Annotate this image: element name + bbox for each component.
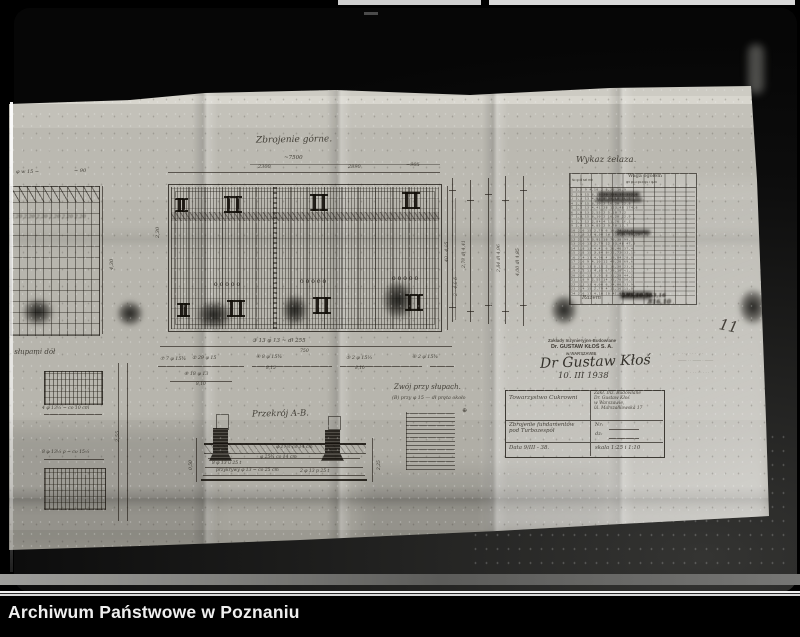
bar-length-label: 4,00 dł 4,85 (516, 248, 521, 276)
dimension-label: 2890 (348, 165, 361, 171)
i-beam-symbol (175, 198, 188, 212)
left-panel-note: φ w 15 ~ (16, 170, 39, 176)
dimension-line (372, 438, 373, 482)
ink-blot (282, 294, 308, 326)
bent-bar-diagram (470, 180, 471, 322)
dimension-label: 0,50 (190, 460, 195, 470)
title-block-date: Data 9/III - 38. (509, 446, 549, 452)
bar-schedule-line (430, 366, 454, 367)
iron-table-group-header: Waga ogółem (628, 174, 662, 180)
section-note: 2 φ 13 p 25 t (300, 470, 329, 475)
bar-mark: ② 29 φ 15 (192, 356, 216, 361)
board-bottom-edge (0, 574, 800, 585)
dimension-label: 2,25 (378, 460, 383, 470)
title-block-client: Towarzystwo Cukrowni (509, 395, 578, 401)
plan-title: Zbrojenie górne. (256, 135, 332, 146)
pit-hatch-detail (406, 412, 455, 470)
i-beam-symbol (177, 303, 190, 317)
pier-plan-detail (44, 468, 106, 510)
stirrup-marks: ooooo (300, 278, 328, 285)
pier-plan-detail (44, 371, 103, 405)
dimension-line (127, 363, 128, 521)
iron-table-title: Wykaz żelaza. (576, 156, 636, 165)
dimension-line (102, 186, 103, 334)
title-block: Towarzystwo Cukrowni Zakł. Inż. Budowlan… (505, 390, 665, 458)
section-bottom-line (201, 479, 367, 481)
i-beam-symbol (313, 297, 331, 314)
ink-smudge (616, 230, 650, 235)
ink-blot (116, 300, 144, 327)
section-note: przykrywy φ 13 ~ co 25 cm (216, 469, 279, 474)
dimension-line (196, 438, 197, 482)
section-title: Przekrój A-B. (252, 410, 309, 420)
column-stub (328, 416, 341, 430)
iron-table-rows: 1 2,2 9 4,10 2 8,20 16,92 2,9 15 8,15 29… (571, 188, 695, 296)
dimension-line (44, 414, 102, 415)
title-block-subject: Zbrojenie fundamentów pod Turbozespół (509, 423, 574, 435)
title-block-dz: dz: (595, 432, 603, 438)
ink-blot (550, 294, 578, 326)
ink-smudge (598, 192, 640, 197)
iron-table-total: 816,10 (648, 300, 671, 307)
bar-schedule-line (158, 366, 244, 367)
archive-photo-page: φ w 15 ~ ~ 90 2,20 2,20 2,20 2,20 2,20 2… (0, 0, 800, 637)
bent-bar-diagram (505, 176, 506, 324)
faint-stamp-line: · · · · · · · · · · · · (674, 352, 704, 357)
section-column (325, 430, 340, 454)
pit-detail-title: Zwój przy słupach. (394, 384, 461, 392)
bent-bar-diagram (523, 176, 524, 326)
bar-mark: ⑥ 2 φ 15¾ (412, 355, 438, 360)
bent-bar-diagram (488, 178, 489, 324)
ink-blot (196, 300, 232, 330)
title-block-scale: skala 1:25 i 1:10 (595, 446, 640, 452)
dimension-label: ~905 (406, 163, 420, 169)
ink-smudge (620, 292, 652, 299)
bar-mark: ⑤ 2 φ 15⅓ (346, 356, 372, 361)
section-line (203, 475, 365, 476)
ink-blot (22, 298, 54, 326)
bar-mark-sub: 8,15 (266, 367, 276, 372)
detail-dimension: 8 φ 13⅓ ρ ~ co 15⅓ (42, 450, 89, 455)
page-number: 11 (717, 316, 739, 336)
dimension-label: 2,30 (156, 227, 162, 238)
archive-caption: Archiwum Państwowe w Poznaniu (8, 602, 300, 623)
bar-mark: ⑦ 7 φ 15¾ (160, 357, 186, 362)
column-footing (321, 454, 344, 461)
ink-smudge (596, 198, 642, 202)
bar-length-label: 2,79 dł 4,41 (462, 240, 467, 268)
dimension-label: 4,30 (110, 259, 116, 270)
bar-mark: ③ 13 φ 13 ~ dł 255 (252, 338, 306, 344)
bar-mark: ⑧ 18 φ 13 (184, 372, 208, 377)
film-edge-mark (364, 12, 378, 15)
title-block-firm: Zakł. Inż. Budowlane Dr. Gustaw Kłoś w W… (594, 392, 642, 411)
pit-detail-subtitle: (B) przy φ 15 — dł pręta około (392, 396, 466, 401)
dimension-line (44, 459, 104, 460)
section-note: 8 φ 13 u 25 t (212, 462, 241, 467)
faint-stamp-line: · · · · · · · · (690, 371, 709, 376)
stirrup-marks: ooooo (214, 281, 242, 288)
bar-schedule-line (160, 346, 452, 347)
bar-length-label: 2,84 dł 4,96 (497, 244, 502, 272)
detail-dimension: 4 φ 13⅓ ~ co 10 cm (42, 406, 89, 411)
iron-table-columns-right: φ9 φ13 φ15 φ17 φ25 (626, 181, 765, 185)
dimension-label: 40 · 4,05 (445, 242, 450, 262)
i-beam-symbol (402, 192, 420, 209)
section-column (213, 428, 228, 454)
title-block-nr: Nr: (595, 423, 603, 429)
dimension-label: 2 · 4,0 δ (454, 277, 459, 296)
dimension-label: 2300 (258, 165, 271, 171)
circle-mark: ⊕ (462, 408, 467, 415)
column-footing (209, 454, 232, 461)
signature-date: 10. III 1938 (558, 372, 609, 381)
i-beam-symbol (224, 196, 242, 213)
dimension-label: 2,55 (116, 431, 122, 442)
dimension-line (118, 363, 119, 521)
bar-mark-sub: 8,10 (355, 367, 365, 372)
bar-schedule-line (252, 366, 332, 367)
faint-stamp-line: —— · · —— · —— (678, 359, 713, 364)
left-panel-note: ~ 90 (74, 169, 86, 175)
section-note: φ 25¾ co 14 cm (260, 456, 297, 461)
section-note: φ 17½ co 14 cm (276, 446, 313, 451)
iron-table-footer-label: Razem (582, 295, 601, 301)
dimension-line (168, 172, 440, 173)
film-edge-strip (338, 0, 481, 5)
dimension-line (455, 198, 456, 320)
bar-mark-sub: 750 (300, 349, 309, 354)
bar-mark: ④ 8 φ 15¾ (256, 355, 282, 360)
film-edge-strip (489, 0, 795, 5)
paper-edge-highlight (10, 102, 13, 572)
bar-mark-sub: 8,10 (196, 383, 206, 388)
bar-schedule-line (340, 366, 422, 367)
caption-bar: Archiwum Państwowe w Poznaniu (0, 596, 800, 637)
dimension-label: ~7500 (284, 155, 303, 161)
ink-blot (382, 280, 414, 320)
i-beam-symbol (310, 194, 328, 211)
grid-row-labels: 2,20 2,20 2,20 2,20 2,20 2,20 (11, 215, 86, 221)
bent-bar-diagram (452, 178, 453, 322)
